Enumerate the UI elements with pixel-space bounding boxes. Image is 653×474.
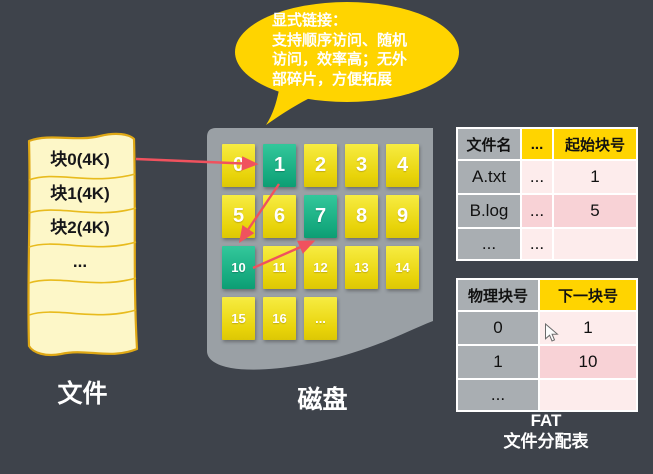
table-cell: A.txt [458, 161, 520, 193]
table-cell: ... [522, 195, 552, 227]
disk-block: 5 [222, 195, 255, 238]
disk-block: 12 [304, 246, 337, 289]
table-cell: B.log [458, 195, 520, 227]
disk-block: 14 [386, 246, 419, 289]
bubble-text: 显式链接：支持顺序访问、随机访问，效率高；无外部碎片，方便拓展 [272, 11, 447, 89]
table-cell [554, 229, 636, 259]
file-block-row: 块2(4K) [24, 217, 136, 239]
directory-table: 文件名...起始块号A.txt...1B.log...5...... [456, 127, 638, 261]
file-block-list: 块0(4K)块1(4K)块2(4K)... [24, 127, 136, 357]
table-header-cell: 物理块号 [458, 280, 538, 310]
fat-caption: FAT 文件分配表 [455, 410, 637, 452]
table-header-cell: 下一块号 [540, 280, 636, 310]
disk-block: 13 [345, 246, 378, 289]
table-header-cell: 起始块号 [554, 129, 636, 159]
file-block-row: ... [24, 251, 136, 273]
bubble-text-line: 支持顺序访问、随机 [272, 31, 447, 51]
slide: 显式链接：支持顺序访问、随机访问，效率高；无外部碎片，方便拓展 块0(4K)块1… [0, 0, 653, 474]
disk-block: 2 [304, 144, 337, 187]
table-cell: 10 [540, 346, 636, 378]
disk-block: 8 [345, 195, 378, 238]
disk-block: 3 [345, 144, 378, 187]
disk-block: 4 [386, 144, 419, 187]
table-header-cell: ... [522, 129, 552, 159]
file-block-row: 块1(4K) [24, 183, 136, 205]
disk-block: 9 [386, 195, 419, 238]
fat-caption-line1: FAT [455, 410, 637, 431]
bubble-text-line: 部碎片，方便拓展 [272, 70, 447, 90]
disk-block: 6 [263, 195, 296, 238]
disk-block: 15 [222, 297, 255, 340]
disk-label: 磁盘 [275, 380, 370, 416]
disk-block: 10 [222, 246, 255, 289]
table-cell: 5 [554, 195, 636, 227]
disk-block: 1 [263, 144, 296, 187]
disk-block: 0 [222, 144, 255, 187]
fat-table: 物理块号下一块号01110... [456, 278, 638, 412]
table-cell: ... [522, 161, 552, 193]
table-cell: 1 [554, 161, 636, 193]
table-cell: ... [522, 229, 552, 259]
file-label: 文件 [35, 374, 130, 410]
table-cell: ... [458, 229, 520, 259]
table-cell [540, 380, 636, 410]
disk-block: 7 [304, 195, 337, 238]
file-block-row: 块0(4K) [24, 149, 136, 171]
table-cell: ... [458, 380, 538, 410]
table-cell: 0 [458, 312, 538, 344]
table-cell: 1 [458, 346, 538, 378]
disk-block: ... [304, 297, 337, 340]
table-header-cell: 文件名 [458, 129, 520, 159]
disk-block-grid: 012345678910111213141516... [222, 144, 419, 340]
bubble-text-line: 访问，效率高；无外 [272, 50, 447, 70]
bubble-text-line: 显式链接： [272, 11, 447, 31]
disk-block: 11 [263, 246, 296, 289]
fat-caption-line2: 文件分配表 [455, 431, 637, 452]
speech-bubble-tail [266, 90, 314, 125]
disk-block: 16 [263, 297, 296, 340]
mouse-cursor [544, 323, 560, 345]
